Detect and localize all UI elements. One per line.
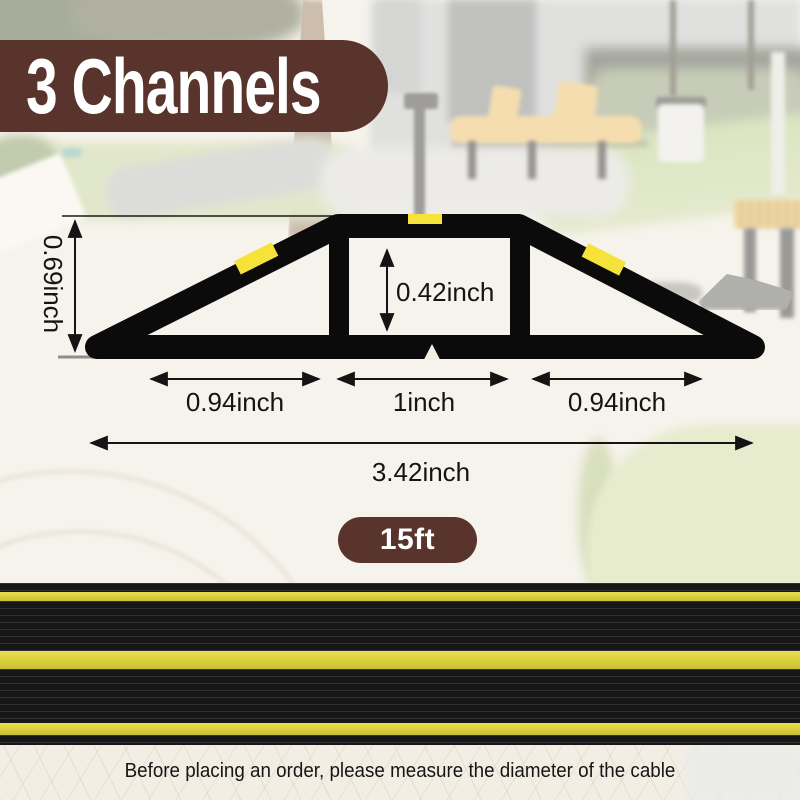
length-badge: 15ft: [338, 517, 477, 563]
strip-black-section: [0, 583, 800, 592]
strip-black-section: [0, 669, 800, 723]
product-strip-photo: [0, 583, 800, 745]
product-infographic: 0.69inch 0.42inch 0.94inch 1inch 0.94inc…: [0, 0, 800, 800]
strip-yellow-stripe-top: [0, 592, 800, 601]
strip-yellow-stripe-bottom: [0, 723, 800, 735]
strip-black-section: [0, 735, 800, 745]
strip-yellow-stripe-middle: [0, 651, 800, 669]
footer-note: Before placing an order, please measure …: [24, 760, 776, 783]
channels-badge-label: 3 Channels: [26, 41, 321, 131]
strip-black-section: [0, 601, 800, 651]
channels-badge: 3 Channels: [0, 40, 388, 132]
length-badge-label: 15ft: [380, 523, 435, 557]
